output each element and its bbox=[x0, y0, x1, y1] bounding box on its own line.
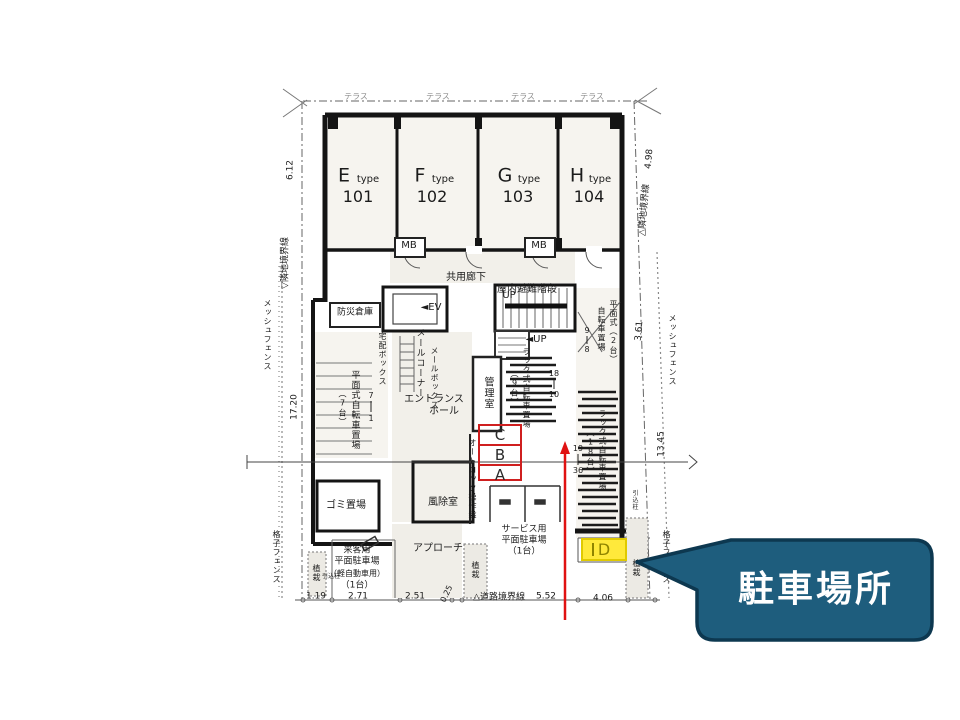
garbage-room-outline bbox=[317, 481, 379, 531]
elevator-room bbox=[383, 287, 447, 331]
windbreak-room-outline bbox=[413, 462, 473, 522]
stairwell bbox=[495, 285, 575, 359]
red-arrow bbox=[560, 441, 570, 620]
manager-room-outline bbox=[473, 357, 501, 431]
callout-label: 駐車場所 bbox=[700, 572, 932, 608]
disaster-storage-room bbox=[330, 303, 380, 327]
parking-space-markers: C B A bbox=[478, 424, 522, 481]
space-marker-c: C bbox=[480, 426, 520, 446]
space-marker-b: B bbox=[480, 446, 520, 466]
slide-page: テラステラステラステラスEtype101Ftype102Gtype103Htyp… bbox=[0, 0, 960, 720]
rack-bike-middle bbox=[506, 358, 556, 421]
stall-divider-line bbox=[592, 543, 594, 556]
service-parking-stall bbox=[490, 486, 560, 522]
space-marker-a: A bbox=[480, 466, 520, 484]
